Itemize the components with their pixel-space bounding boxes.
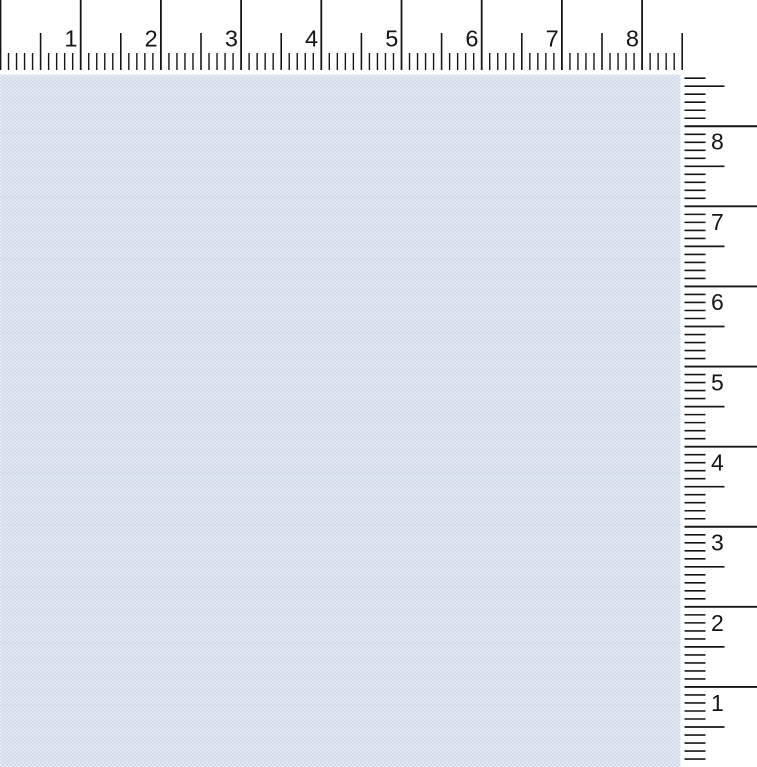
svg-text:4: 4 [711,450,724,476]
svg-text:8: 8 [711,129,724,155]
svg-text:5: 5 [711,369,724,395]
svg-text:1: 1 [711,690,724,716]
svg-text:8: 8 [626,25,639,51]
svg-text:6: 6 [711,289,724,315]
svg-text:3: 3 [225,25,238,51]
svg-text:2: 2 [145,25,158,51]
svg-text:7: 7 [546,25,559,51]
svg-text:6: 6 [465,25,478,51]
svg-text:3: 3 [711,530,724,556]
svg-text:4: 4 [305,25,318,51]
svg-text:2: 2 [711,610,724,636]
svg-text:7: 7 [711,209,724,235]
svg-text:5: 5 [385,25,398,51]
svg-text:1: 1 [64,25,77,51]
